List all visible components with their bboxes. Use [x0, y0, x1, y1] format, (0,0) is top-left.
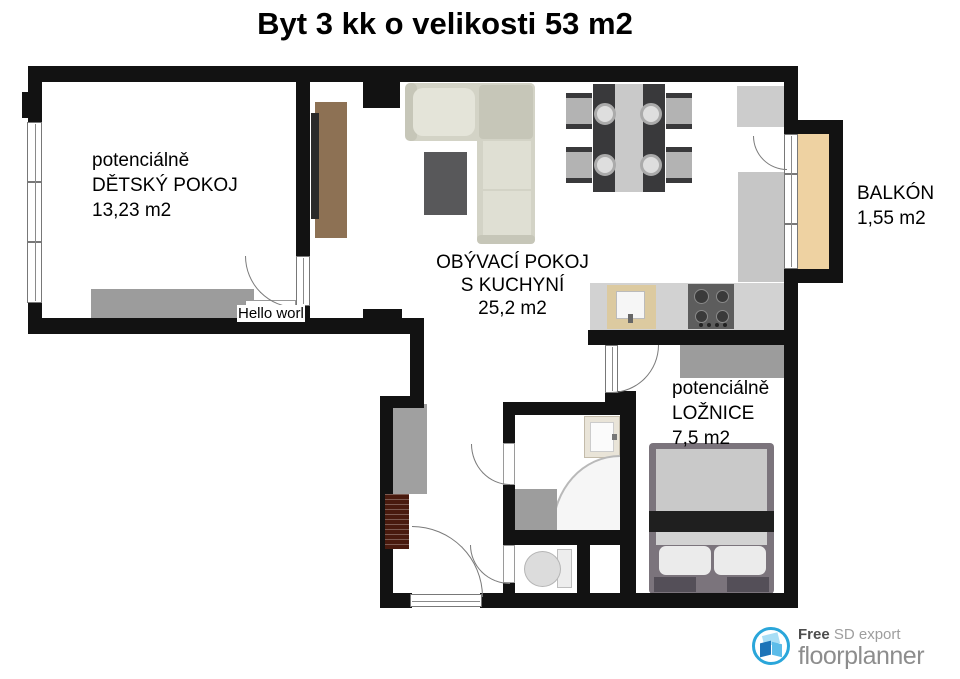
table-runner	[643, 84, 665, 192]
faucet	[628, 314, 633, 323]
wall-top	[28, 66, 798, 82]
dining-chair	[566, 147, 592, 183]
burner	[716, 310, 729, 323]
sofa-backrest	[479, 85, 533, 139]
chimney	[363, 309, 402, 320]
wall-bottom	[480, 593, 797, 608]
sofa-cushion	[483, 141, 531, 189]
wall-bedroom-left	[620, 391, 636, 608]
bed-footboard	[654, 577, 696, 592]
dining-chair	[666, 93, 692, 129]
free-badge: Free	[798, 626, 830, 643]
bed-blanket	[649, 511, 774, 532]
floorplanner-logo-icon	[752, 627, 790, 665]
door-arc-balcony	[753, 136, 787, 170]
wall-kids-bottom	[28, 318, 424, 334]
room-label-balkon: BALKÓN 1,55 m2	[857, 181, 934, 231]
kitchen-counter	[738, 172, 785, 282]
floorplanner-logo: Free SD export floorplanner	[752, 627, 924, 669]
stove-knob	[699, 323, 703, 327]
wall-partition-kids	[296, 66, 310, 256]
hall-wardrobe	[393, 404, 427, 494]
bed-sheet	[656, 532, 767, 545]
export-label: SD export	[834, 626, 901, 643]
coffee-table	[424, 152, 467, 215]
burner	[695, 310, 708, 323]
washbasin-faucet	[612, 434, 617, 440]
shoe-rack	[385, 494, 409, 549]
plate	[594, 154, 616, 176]
door-jamb-kids	[296, 256, 310, 306]
stove-knob	[715, 323, 719, 327]
balcony-floor	[798, 134, 829, 269]
logo-text: Free SD export floorplanner	[798, 627, 924, 669]
shower	[552, 455, 620, 530]
brand-name: floorplanner	[798, 643, 924, 669]
wall-bath-left	[503, 402, 515, 443]
stove-knob	[707, 323, 711, 327]
dining-chair	[666, 147, 692, 183]
window-divider	[785, 173, 797, 175]
room-label-obyvaci-pokoj: OBÝVACÍ POKOJ S KUCHYNÍ 25,2 m2	[400, 251, 625, 320]
floorplan-canvas: Byt 3 kk o velikosti 53 m2	[0, 0, 960, 679]
wall-bath-top	[503, 402, 636, 415]
logo-tagline: Free SD export	[798, 627, 924, 643]
stove-knob	[723, 323, 727, 327]
door-arc-bathroom	[471, 444, 510, 485]
bath-mat	[514, 489, 557, 530]
door-arc-entrance	[412, 526, 483, 597]
plate	[594, 103, 616, 125]
wall-balcony-right	[829, 120, 843, 283]
room-label-loznice: potenciálně LOŽNICE 7,5 m2	[672, 376, 769, 451]
room-name: OBÝVACÍ POKOJ	[400, 251, 625, 274]
sofa-cushion	[483, 191, 531, 235]
chimney	[363, 66, 400, 108]
room-area: 13,23 m2	[92, 198, 238, 223]
burner	[716, 290, 729, 303]
washbasin-bowl	[590, 422, 614, 452]
toilet-bowl	[524, 551, 561, 587]
wall-bottom	[380, 593, 412, 608]
room-name: S KUCHYNÍ	[400, 274, 625, 297]
page-title: Byt 3 kk o velikosti 53 m2	[0, 6, 890, 42]
window-divider	[785, 223, 797, 225]
room-name: BALKÓN	[857, 181, 934, 206]
plate	[640, 154, 662, 176]
bed-footboard	[727, 577, 769, 592]
kids-bed	[91, 289, 254, 319]
room-name: DĚTSKÝ POKOJ	[92, 173, 238, 198]
room-name: LOŽNICE	[672, 401, 769, 426]
dining-chair	[566, 93, 592, 129]
pillow	[714, 546, 766, 575]
window-divider	[28, 181, 41, 183]
room-label-detsky-pokoj: potenciálně DĚTSKÝ POKOJ 13,23 m2	[92, 148, 238, 223]
wall-wc-right	[577, 545, 590, 608]
bedroom-wardrobe	[680, 344, 784, 378]
annotation-text: Hello worl	[237, 305, 305, 322]
door-arc-bedroom	[611, 345, 659, 393]
sofa-armrest	[477, 235, 535, 244]
room-area: 7,5 m2	[672, 426, 769, 451]
logo-cube-right	[772, 642, 782, 657]
room-prefix: potenciálně	[672, 376, 769, 401]
wall-right-lower	[784, 330, 798, 608]
burner	[694, 289, 709, 304]
wall-left-bump	[22, 92, 28, 118]
wall-kitchen-bottom	[588, 330, 798, 345]
logo-cube-left	[760, 641, 771, 658]
room-area: 1,55 m2	[857, 206, 934, 231]
window-divider	[28, 241, 41, 243]
plate	[640, 103, 662, 125]
room-area: 25,2 m2	[400, 297, 625, 320]
sofa-cushion	[413, 88, 475, 136]
tv-cabinet	[315, 102, 347, 238]
bed-mattress	[656, 449, 767, 511]
wall-hall-vertical	[410, 320, 424, 408]
window	[27, 122, 42, 303]
tv	[311, 113, 319, 219]
pillow	[659, 546, 711, 575]
kitchen-cabinet	[737, 86, 786, 127]
wall-bath-bottom	[503, 530, 636, 545]
room-prefix: potenciálně	[92, 148, 238, 173]
wall-wc-left	[503, 583, 515, 608]
